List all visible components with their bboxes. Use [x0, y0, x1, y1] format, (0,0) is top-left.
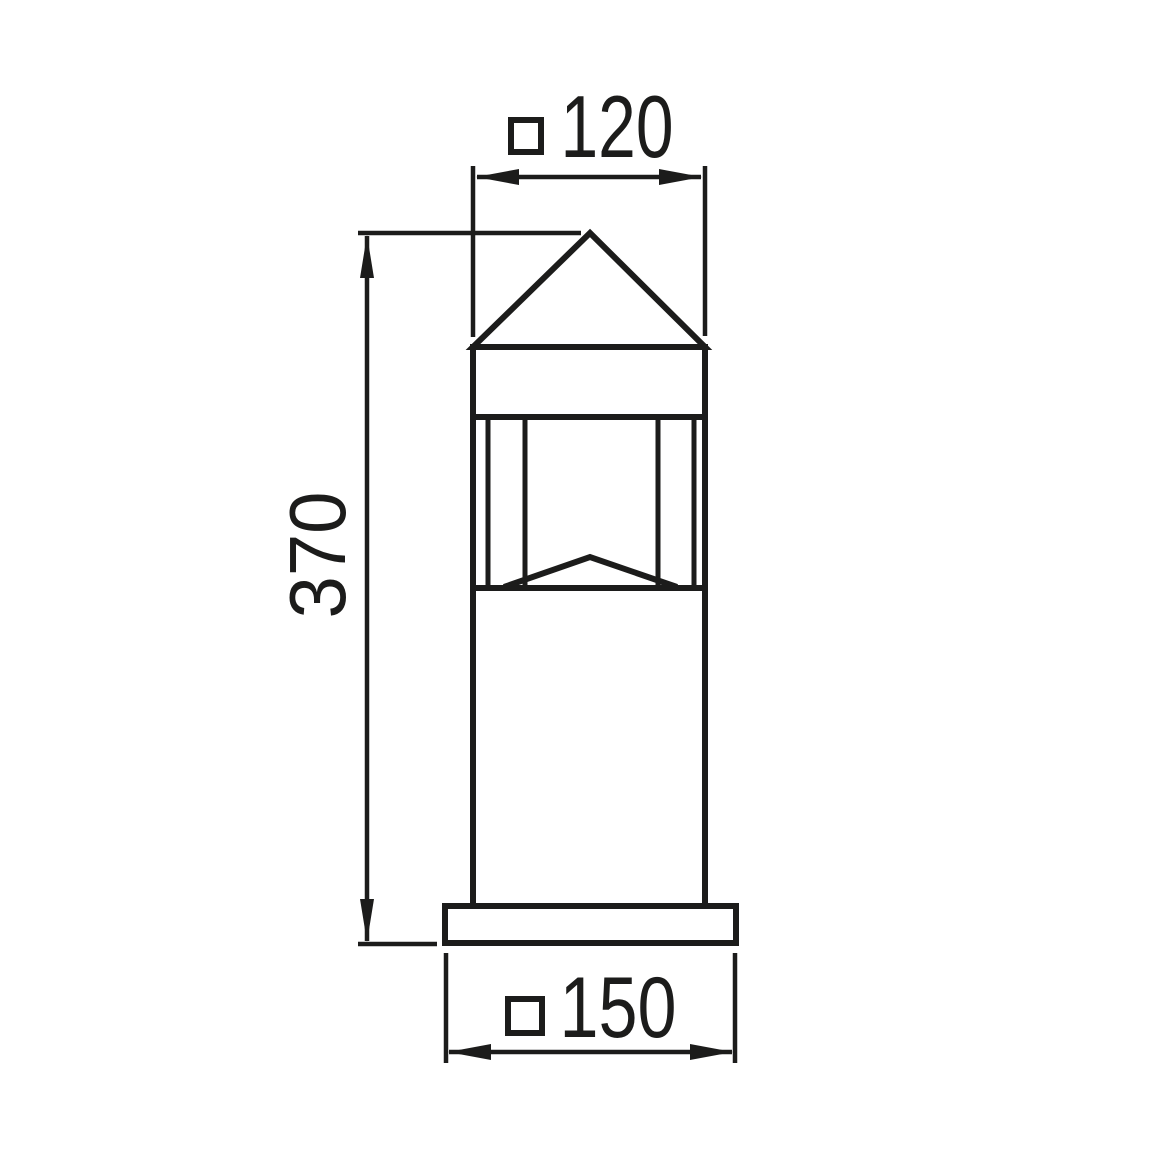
arrowhead-down-icon: [360, 899, 374, 942]
square-section-symbol-icon: [511, 120, 541, 152]
bollard-fixture: [445, 233, 736, 943]
technical-dimension-drawing: 120 370 150: [0, 0, 1160, 1160]
base-plate: [445, 906, 736, 943]
dimension-label-height: 370: [273, 492, 362, 619]
fixture-column-outline: [473, 347, 705, 906]
arrowhead-left-icon: [448, 1044, 491, 1060]
square-section-symbol-icon: [508, 999, 542, 1033]
dimension-base-width: 150: [446, 953, 735, 1063]
arrowhead-up-icon: [360, 235, 374, 278]
dimension-label-base-width: 150: [560, 960, 677, 1056]
arrowhead-right-icon: [690, 1044, 733, 1060]
arrowhead-left-icon: [476, 169, 519, 185]
bollard-light-drawing: 120 370 150: [0, 0, 1160, 1160]
dimension-label-top-width: 120: [561, 77, 674, 176]
roof-pyramid: [473, 233, 705, 347]
